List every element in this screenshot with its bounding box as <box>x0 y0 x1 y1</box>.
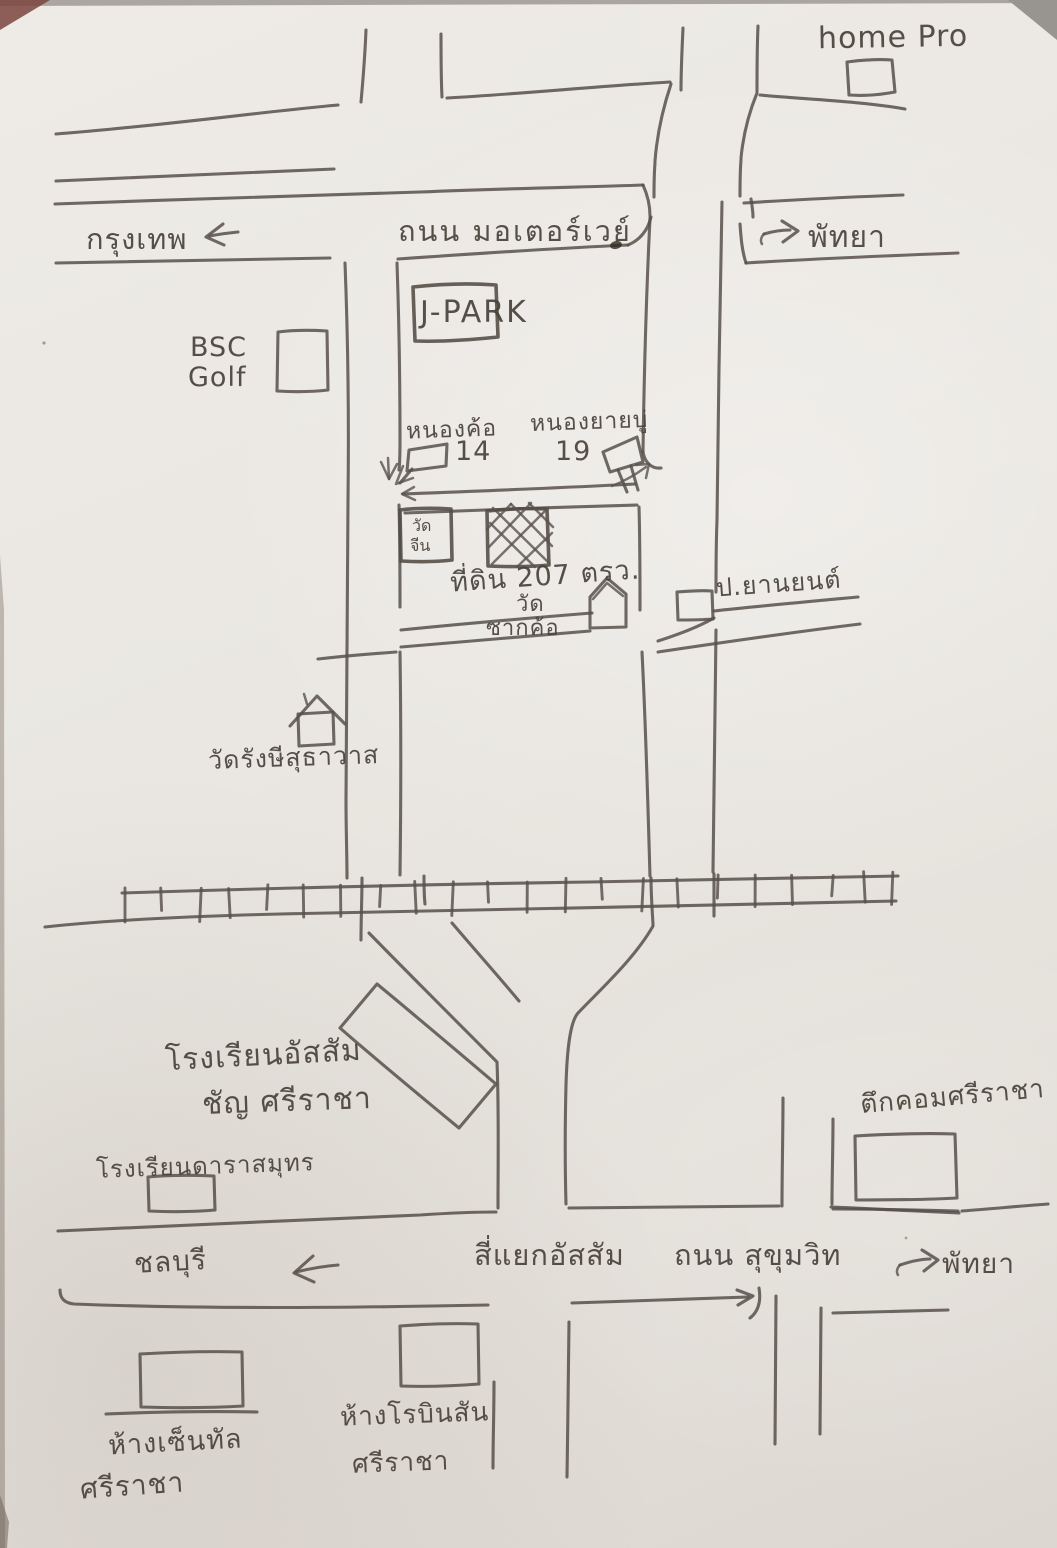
robinson-building <box>400 1324 479 1387</box>
pattaya-bottom-label: พัทยา <box>942 1242 1015 1286</box>
bangkok-left-arrow-icon <box>206 224 238 245</box>
pattaya-top-label: พัทยา <box>808 214 886 261</box>
right-vertical-road <box>642 202 722 924</box>
tuk-com-building <box>855 1134 957 1200</box>
chonburi-label: ชลบุรี <box>133 1238 208 1286</box>
home-pro-building <box>847 60 895 96</box>
wat-chin-label-line2: จีน <box>410 534 430 559</box>
wat-rangsi-label: วัดรังษีสุธาวาส <box>207 735 380 781</box>
central-building <box>106 1352 257 1414</box>
soi-left-number-label: 14 <box>455 436 491 467</box>
south-roads <box>493 1098 959 1477</box>
home-pro-label: home Pro <box>818 19 969 57</box>
ink-smudge <box>42 240 907 1240</box>
soi-road-right-arrow-icon <box>402 464 649 500</box>
sukhumvit-road-label: ถนน สุขุมวิท <box>674 1232 841 1278</box>
chonburi-left-arrow-icon <box>294 1256 338 1282</box>
pattaya-bottom-right-arrow-icon <box>897 1250 938 1275</box>
soi-entry-down-arrow-icon <box>381 458 397 479</box>
hand-drawn-map: home Pro กรุงเทพ ถนน มอเตอร์เวย์ พัทยา J… <box>0 0 1057 1548</box>
bsc-golf-building <box>277 330 328 391</box>
wat-sakkho-label-line2: ซากค้อ <box>486 610 560 645</box>
pattaya-top-right-arrow-icon <box>761 221 798 244</box>
bsc-label-line1: BSC <box>190 332 247 363</box>
darasamut-label: โรงเรียนดาราสมุทร <box>95 1142 315 1189</box>
bangkok-label: กรุงเทพ <box>86 216 187 262</box>
central-label-line1: ห้างเซ็นทัล <box>107 1417 244 1467</box>
y-junction-roads <box>369 923 653 1208</box>
robinson-label-line2: ศรีราชา <box>351 1440 450 1484</box>
soi-right-number-label: 19 <box>555 436 591 467</box>
soi-left-flag-icon <box>396 444 447 484</box>
j-park-label: J-PARK <box>420 295 528 330</box>
central-label-line2: ศรีราชา <box>79 1460 186 1511</box>
assumption-label-line2: ชัญ ศรีราชา <box>201 1075 372 1128</box>
bsc-label-line2: Golf <box>188 362 246 393</box>
railroad <box>45 872 898 940</box>
motorway-road-label: ถนน มอเตอร์เวย์ <box>398 208 632 254</box>
intersection-label: สี่แยกอัสสัม <box>474 1232 625 1278</box>
top-road <box>56 26 905 181</box>
left-vertical-road <box>318 263 401 878</box>
robinson-label-line1: ห้างโรบินสัน <box>339 1391 490 1437</box>
p-yanyon-building <box>677 591 713 620</box>
